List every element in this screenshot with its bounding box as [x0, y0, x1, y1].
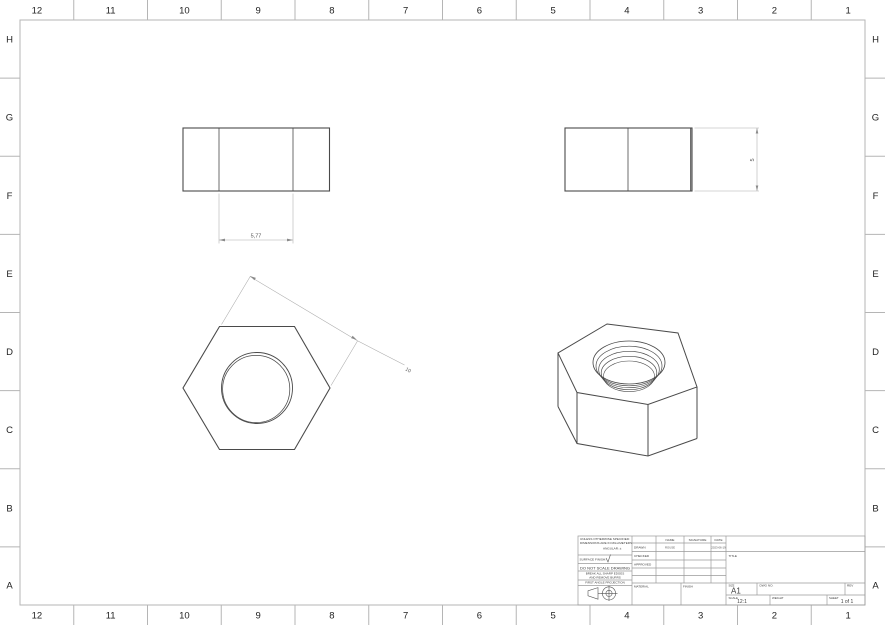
grid-ref-bottom: 12 11 10 9 8 7 6 5 4 3 2 1 [32, 611, 851, 622]
grid-col-label: 5 [550, 611, 555, 622]
grid-col-label: 6 [477, 6, 482, 17]
title-block: UNLESS OTHERWISE SPECIFIED: DIMENSIONS A… [578, 536, 865, 605]
grid-col-label: 1 [845, 6, 850, 17]
grid-row-label: E [6, 269, 12, 280]
grid-col-label: 7 [403, 6, 408, 17]
grid-col-label: 12 [32, 6, 43, 17]
grid-col-label: 8 [329, 611, 334, 622]
grid-row-label: B [872, 503, 878, 514]
finish-label: FINISH [683, 585, 693, 589]
row-label-drawn: DRAWN [634, 546, 646, 550]
dimension-text-side-height: 5 [750, 158, 756, 161]
grid-row-label: G [6, 113, 13, 124]
dimension-side-height: 5 [695, 128, 760, 191]
scale-weight-sheet-band: SCALE 12:1 WEIGHT SHEET 1 of 1 [729, 596, 854, 605]
grid-col-label: 4 [624, 6, 629, 17]
grid-col-label: 4 [624, 611, 629, 622]
surface-finish-label: SURFACE FINISH: [580, 558, 607, 562]
dimension-text-front-width: 5,77 [251, 234, 262, 240]
date-header: DATE [714, 538, 722, 542]
grid-row-label: D [872, 347, 879, 358]
dimension-front-width: 5,77 [219, 194, 293, 244]
grid-row-label: A [872, 580, 879, 591]
projection-label: FIRST ANGLE PROJECTION [585, 581, 625, 585]
grid-row-label: E [872, 269, 878, 280]
material-label: MATERIAL [634, 585, 649, 589]
deburr-note-line: AND REMOVE BURRS [589, 575, 621, 579]
grid-col-label: 6 [477, 611, 482, 622]
grid-ref-left: H G F E D C B A [6, 35, 14, 592]
grid-col-label: 1 [845, 611, 850, 622]
grid-row-label: G [872, 113, 879, 124]
name-header: NAME [666, 538, 675, 542]
weight-label: WEIGHT [772, 596, 784, 600]
grid-col-label: 10 [179, 611, 190, 622]
grid-row-label: A [6, 580, 13, 591]
grid-col-label: 3 [698, 6, 703, 17]
surface-finish-icon [606, 555, 611, 563]
grid-row-label: D [6, 347, 13, 358]
side-view [565, 128, 692, 191]
grid-col-label: 2 [772, 611, 777, 622]
grid-col-label: 12 [32, 611, 43, 622]
grid-row-label: H [6, 35, 13, 46]
front-view [183, 128, 330, 191]
grid-col-label: 7 [403, 611, 408, 622]
drawn-name-value: ROUSE [665, 546, 675, 550]
grid-col-label: 9 [255, 611, 260, 622]
title-label: TITLE [729, 554, 737, 558]
approval-table: NAME SIGNATURE DATE DRAWN ROUSE 2023-06-… [634, 538, 726, 567]
grid-col-label: 9 [255, 6, 260, 17]
tolerance-notes: UNLESS OTHERWISE SPECIFIED: DIMENSIONS A… [580, 537, 632, 551]
sheet-label: SHEET [829, 596, 839, 600]
isometric-view [558, 324, 697, 456]
dimension-text-hex-across-flats: 10 [404, 367, 412, 375]
grid-row-label: F [873, 191, 879, 202]
grid-row-label: F [7, 191, 13, 202]
grid-row-label: C [6, 425, 13, 436]
grid-row-label: H [872, 35, 879, 46]
signature-header: SIGNATURE [689, 538, 707, 542]
sheet-frame [0, 0, 885, 625]
rev-label: REV [847, 584, 854, 588]
grid-col-label: 11 [106, 611, 116, 622]
sheet-value: 1 of 1 [841, 599, 854, 605]
grid-row-label: C [872, 425, 879, 436]
size-dwg-rev-band: SIZE A1 DWG NO. REV [729, 584, 855, 596]
grid-col-label: 3 [698, 611, 703, 622]
grid-col-label: 5 [550, 6, 555, 17]
grid-col-label: 10 [179, 6, 190, 17]
plan-view-hex [183, 327, 330, 450]
drawing-canvas: 12 11 10 9 8 7 6 5 4 3 2 1 12 11 10 9 8 … [0, 0, 885, 625]
grid-row-label: B [6, 503, 12, 514]
row-label-checked: CHECKED [634, 554, 650, 558]
dwg-no-label: DWG NO. [760, 584, 774, 588]
grid-col-label: 11 [106, 6, 116, 17]
size-value: A1 [731, 587, 741, 596]
grid-col-label: 2 [772, 6, 777, 17]
grid-ref-top: 12 11 10 9 8 7 6 5 4 3 2 1 [32, 6, 851, 17]
grid-ref-right: H G F E D C B A [872, 35, 880, 592]
first-angle-projection-icon [588, 586, 618, 601]
grid-col-label: 8 [329, 6, 334, 17]
do-not-scale-label: DO NOT SCALE DRAWING [580, 565, 630, 570]
note-line: DIMENSIONS ARE IN MILLIMETERS [580, 541, 632, 545]
scale-value: 12:1 [737, 599, 747, 605]
drawing-sheet: 12 11 10 9 8 7 6 5 4 3 2 1 12 11 10 9 8 … [0, 0, 885, 625]
note-line: ANGULAR: ± [603, 547, 622, 551]
row-label-approved: APPROVED [634, 563, 652, 567]
drawn-date-value: 2023-06-19 [711, 546, 726, 550]
